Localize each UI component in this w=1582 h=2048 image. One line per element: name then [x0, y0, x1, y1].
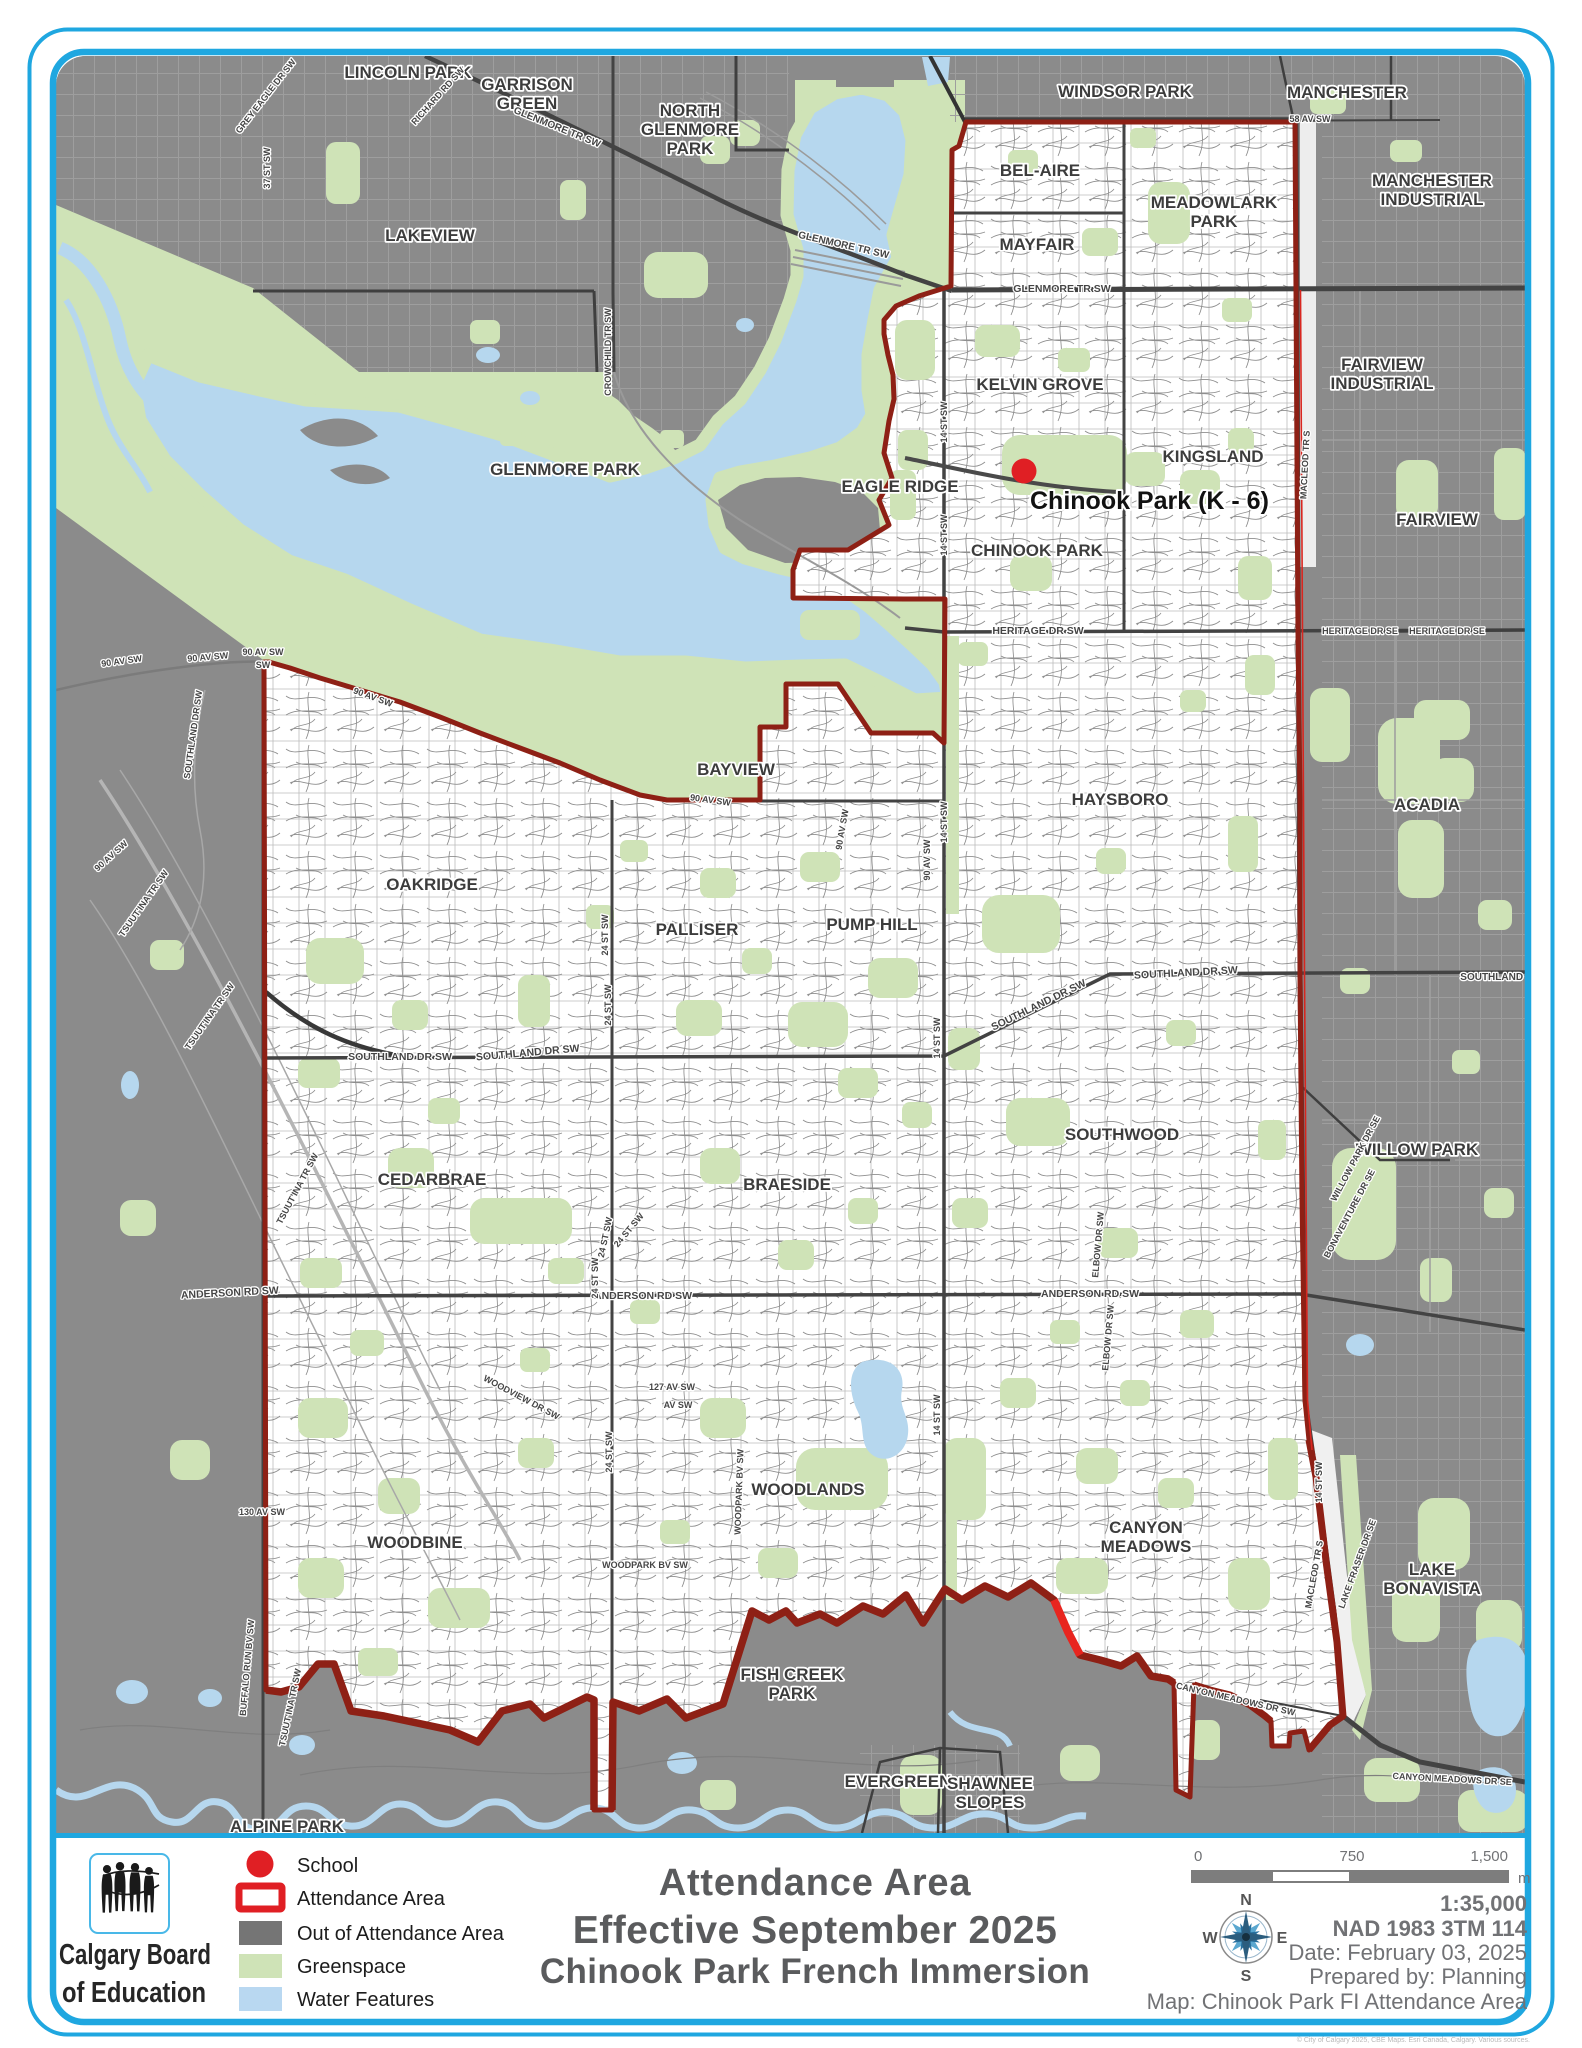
svg-text:Prepared by: Planning: Prepared by: Planning [1309, 1964, 1527, 1989]
svg-text:EAGLE RIDGE: EAGLE RIDGE [841, 477, 958, 496]
svg-text:AV SW: AV SW [664, 1400, 693, 1410]
svg-text:Attendance Area: Attendance Area [297, 1888, 446, 1910]
svg-text:WOODLANDS: WOODLANDS [751, 1480, 864, 1499]
svg-text:37 ST SW: 37 ST SW [262, 147, 272, 189]
svg-text:© City of Calgary 2025, CBE Ma: © City of Calgary 2025, CBE Maps. Esri C… [1297, 2036, 1530, 2044]
svg-text:PARK: PARK [769, 1684, 817, 1703]
svg-text:Map: Chinook Park FI Attendanc: Map: Chinook Park FI Attendance Area [1147, 1989, 1528, 2014]
svg-text:KELVIN GROVE: KELVIN GROVE [976, 375, 1103, 394]
svg-text:SOUTHWOOD: SOUTHWOOD [1065, 1125, 1179, 1144]
svg-text:MEADOWLARK: MEADOWLARK [1151, 193, 1278, 212]
svg-text:m: m [1518, 1870, 1531, 1887]
svg-text:BONAVISTA: BONAVISTA [1383, 1579, 1481, 1598]
svg-text:INDUSTRIAL: INDUSTRIAL [1331, 374, 1434, 393]
svg-text:S: S [1241, 1968, 1252, 1985]
svg-text:PARK: PARK [667, 139, 715, 158]
svg-text:PARK: PARK [1191, 212, 1239, 231]
svg-text:MEADOWS: MEADOWS [1101, 1537, 1192, 1556]
svg-text:127 AV SW: 127 AV SW [649, 1382, 696, 1392]
svg-text:FAIRVIEW: FAIRVIEW [1396, 510, 1479, 529]
svg-text:Chinook Park French Immersion: Chinook Park French Immersion [540, 1952, 1090, 1991]
svg-text:FAIRVIEW: FAIRVIEW [1341, 355, 1424, 374]
svg-text:130 AV SW: 130 AV SW [239, 1507, 286, 1517]
svg-text:ACADIA: ACADIA [1394, 795, 1460, 814]
svg-text:Water Features: Water Features [297, 1989, 434, 2011]
svg-text:NORTH: NORTH [660, 101, 720, 120]
svg-text:14 ST SW: 14 ST SW [932, 1017, 942, 1059]
svg-text:CROWCHILD TR SW: CROWCHILD TR SW [603, 308, 613, 396]
svg-text:FISH CREEK: FISH CREEK [741, 1665, 845, 1684]
svg-text:24 ST SW: 24 ST SW [600, 914, 610, 956]
svg-text:CEDARBRAE: CEDARBRAE [378, 1170, 487, 1189]
svg-text:MAYFAIR: MAYFAIR [1000, 235, 1075, 254]
svg-text:Date: February 03, 2025: Date: February 03, 2025 [1289, 1940, 1527, 1965]
svg-text:SLOPES: SLOPES [956, 1793, 1025, 1812]
svg-text:School: School [297, 1855, 358, 1877]
svg-text:CANYON: CANYON [1109, 1518, 1183, 1537]
svg-text:E: E [1277, 1930, 1288, 1947]
svg-text:HERITAGE DR SE: HERITAGE DR SE [1322, 626, 1398, 636]
svg-text:1:35,000: 1:35,000 [1440, 1891, 1527, 1916]
svg-text:HERITAGE DR SW: HERITAGE DR SW [992, 625, 1083, 637]
svg-text:ANDERSON RD SW: ANDERSON RD SW [594, 1290, 692, 1302]
svg-text:GLENMORE TR SW: GLENMORE TR SW [1013, 283, 1111, 295]
svg-text:WOODPARK BV SW: WOODPARK BV SW [602, 1560, 688, 1570]
svg-text:BEL-AIRE: BEL-AIRE [1000, 161, 1080, 180]
svg-text:BRAESIDE: BRAESIDE [743, 1175, 831, 1194]
svg-text:Calgary Board: Calgary Board [59, 1939, 211, 1971]
svg-text:SW: SW [256, 660, 271, 670]
svg-text:90 AV SW: 90 AV SW [922, 839, 932, 881]
svg-text:BAYVIEW: BAYVIEW [697, 760, 776, 779]
svg-text:SHAWNEE: SHAWNEE [947, 1774, 1033, 1793]
svg-text:Chinook Park (K - 6): Chinook Park (K - 6) [1030, 487, 1269, 515]
svg-text:58 AV SW: 58 AV SW [1289, 114, 1331, 124]
svg-text:0: 0 [1194, 1848, 1202, 1865]
svg-text:PUMP HILL: PUMP HILL [826, 915, 917, 934]
svg-text:HAYSBORO: HAYSBORO [1072, 790, 1169, 809]
svg-text:SOUTHLAND DR S: SOUTHLAND DR S [1460, 972, 1550, 983]
svg-text:GLENMORE PARK: GLENMORE PARK [490, 460, 641, 479]
svg-text:14 ST SW: 14 ST SW [932, 1394, 942, 1436]
svg-text:of Education: of Education [62, 1977, 206, 2009]
svg-text:MANCHESTER: MANCHESTER [1372, 171, 1492, 190]
svg-text:MANCHESTER: MANCHESTER [1287, 83, 1407, 102]
svg-text:ANDERSON RD SW: ANDERSON RD SW [1041, 1288, 1139, 1300]
svg-text:SOUTHLAND DR SW: SOUTHLAND DR SW [348, 1051, 452, 1063]
svg-text:GARRISON: GARRISON [481, 75, 573, 94]
svg-text:WOODBINE: WOODBINE [367, 1533, 462, 1552]
svg-text:WINDSOR PARK: WINDSOR PARK [1058, 82, 1193, 101]
svg-text:14 ST SW: 14 ST SW [939, 801, 949, 843]
svg-text:HERITAGE DR SE: HERITAGE DR SE [1409, 626, 1485, 636]
svg-text:90 AV SW: 90 AV SW [242, 647, 284, 657]
svg-text:PALLISER: PALLISER [656, 920, 739, 939]
svg-text:Effective September 2025: Effective September 2025 [573, 1909, 1058, 1952]
svg-text:Greenspace: Greenspace [297, 1956, 406, 1978]
svg-text:750: 750 [1339, 1848, 1364, 1865]
svg-text:24 ST SW: 24 ST SW [590, 1257, 600, 1299]
svg-text:CHINOOK PARK: CHINOOK PARK [971, 541, 1104, 560]
svg-text:GLENMORE: GLENMORE [641, 120, 739, 139]
svg-text:OAKRIDGE: OAKRIDGE [386, 875, 478, 894]
svg-text:14 ST SW: 14 ST SW [1314, 1461, 1324, 1503]
svg-text:KINGSLAND: KINGSLAND [1162, 447, 1263, 466]
svg-text:Out of Attendance Area: Out of Attendance Area [297, 1923, 505, 1945]
svg-text:WILLOW PARK: WILLOW PARK [1356, 1140, 1479, 1159]
svg-text:W: W [1202, 1930, 1218, 1947]
svg-text:24 ST SW: 24 ST SW [604, 1431, 614, 1473]
svg-text:1,500: 1,500 [1470, 1848, 1508, 1865]
svg-text:INDUSTRIAL: INDUSTRIAL [1381, 190, 1484, 209]
svg-text:NAD 1983 3TM 114: NAD 1983 3TM 114 [1333, 1916, 1528, 1941]
svg-text:N: N [1240, 1892, 1252, 1909]
svg-text:14 ST SW: 14 ST SW [939, 514, 949, 556]
svg-text:Attendance Area: Attendance Area [659, 1862, 972, 1904]
svg-text:14 ST SW: 14 ST SW [939, 401, 949, 443]
svg-text:EVERGREEN: EVERGREEN [845, 1772, 952, 1791]
svg-text:LAKEVIEW: LAKEVIEW [385, 226, 476, 245]
svg-text:LAKE: LAKE [1409, 1560, 1455, 1579]
svg-text:24 ST SW: 24 ST SW [603, 984, 613, 1026]
